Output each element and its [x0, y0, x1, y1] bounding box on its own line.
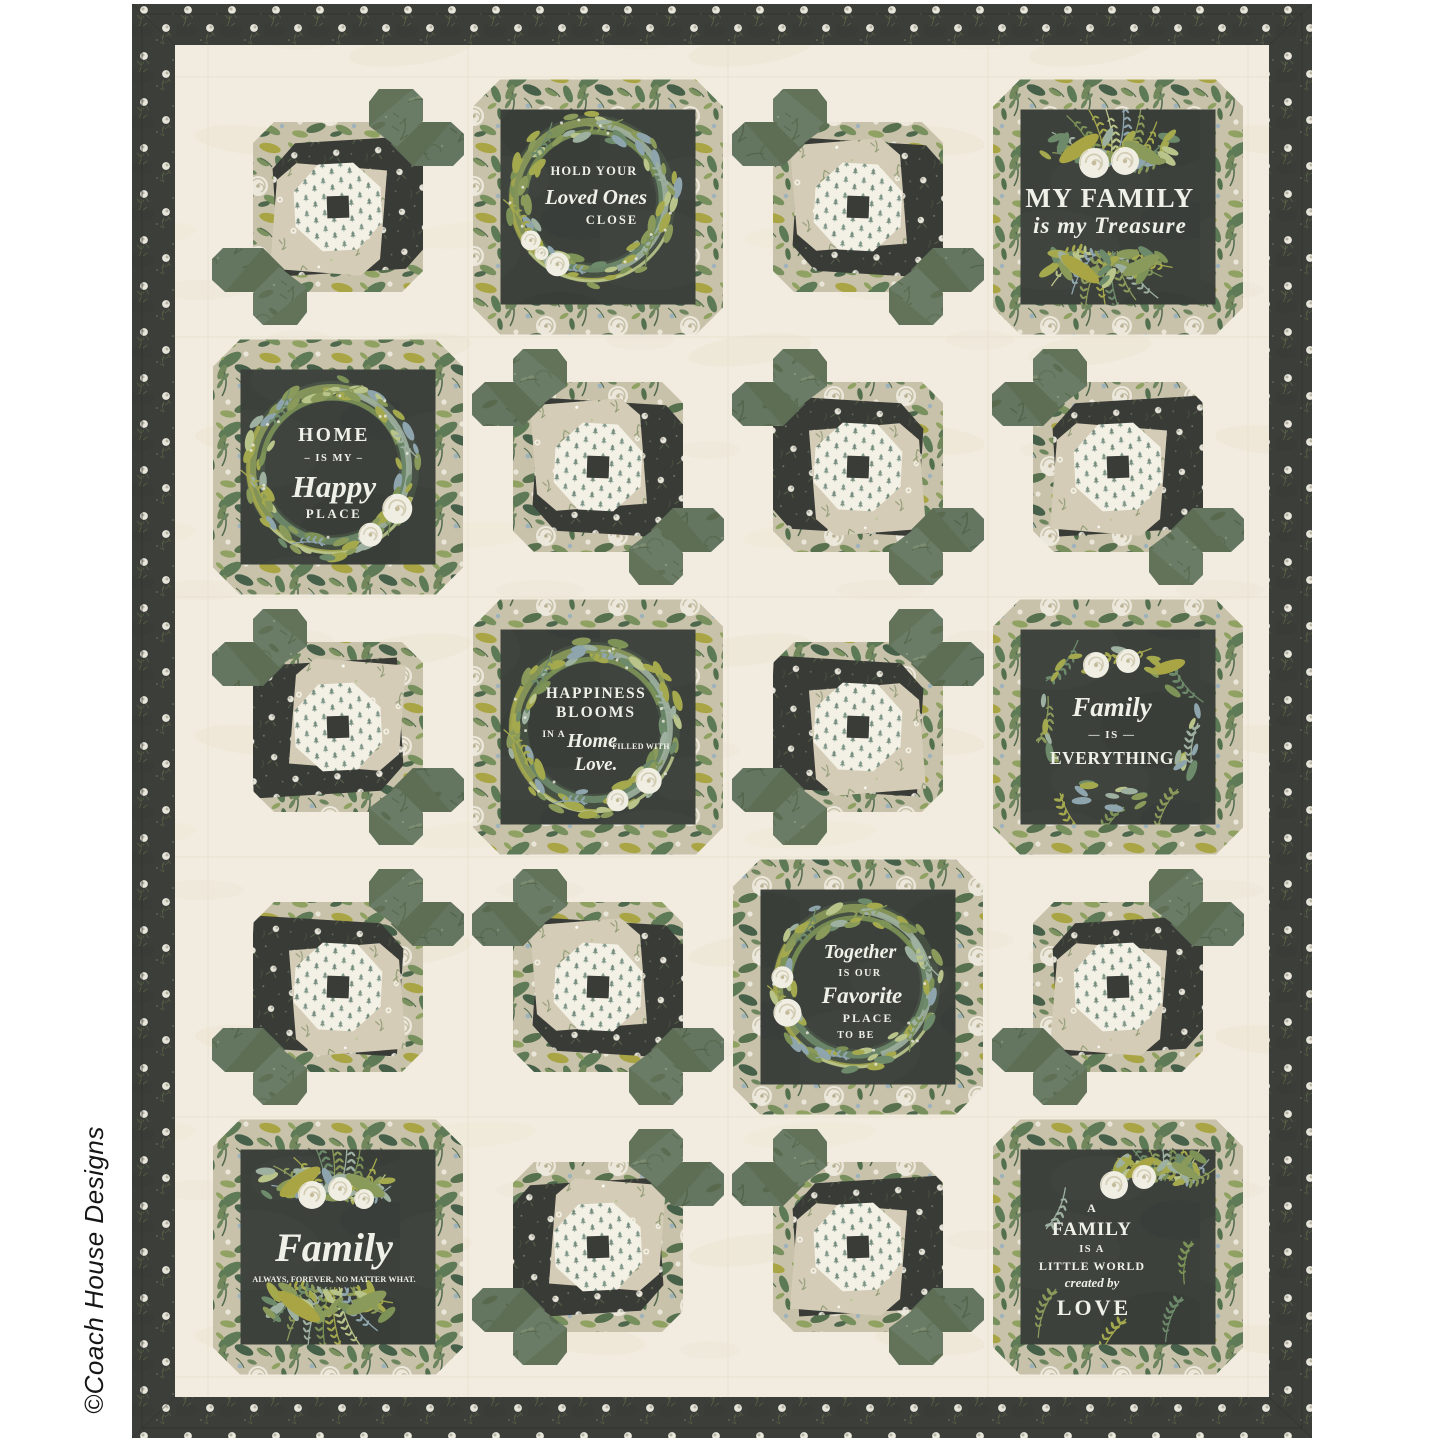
svg-text:FILLED WITH: FILLED WITH — [612, 742, 670, 751]
svg-text:PLACE: PLACE — [843, 1011, 894, 1025]
svg-text:created by: created by — [1065, 1275, 1120, 1290]
svg-text:EVERYTHING: EVERYTHING — [1050, 748, 1174, 768]
svg-text:IN A: IN A — [542, 730, 565, 740]
svg-text:Loved Ones: Loved Ones — [544, 185, 647, 209]
svg-text:Family: Family — [274, 1225, 393, 1270]
svg-text:– IS MY –: – IS MY – — [304, 453, 364, 464]
svg-text:©Coach House Designs: ©Coach House Designs — [79, 1126, 109, 1414]
svg-text:is my Treasure: is my Treasure — [1033, 213, 1187, 238]
svg-text:Favorite: Favorite — [821, 983, 903, 1008]
svg-text:— IS —: — IS — — [1088, 729, 1136, 741]
svg-text:Home: Home — [566, 730, 617, 752]
svg-text:Family: Family — [1071, 692, 1153, 722]
svg-text:PLACE: PLACE — [306, 506, 363, 521]
svg-text:A: A — [1087, 1201, 1097, 1215]
svg-text:FAMILY: FAMILY — [1052, 1219, 1132, 1240]
svg-text:HOLD YOUR: HOLD YOUR — [550, 164, 637, 178]
svg-text:LITTLE WORLD: LITTLE WORLD — [1039, 1259, 1145, 1273]
svg-text:IS OUR: IS OUR — [838, 968, 881, 979]
svg-text:HAPPINESS: HAPPINESS — [546, 685, 647, 702]
svg-text:HOME: HOME — [298, 425, 370, 446]
svg-text:TO BE: TO BE — [837, 1030, 875, 1041]
svg-text:BLOOMS: BLOOMS — [556, 704, 636, 721]
svg-text:CLOSE: CLOSE — [586, 213, 638, 227]
svg-text:MY FAMILY: MY FAMILY — [1025, 183, 1194, 213]
svg-text:LOVE: LOVE — [1057, 1295, 1131, 1320]
svg-text:ALWAYS, FOREVER, NO MATTER WHA: ALWAYS, FOREVER, NO MATTER WHAT. — [252, 1275, 415, 1284]
svg-text:Love.: Love. — [574, 754, 618, 775]
svg-text:IS A: IS A — [1079, 1244, 1105, 1255]
svg-text:Happy: Happy — [291, 469, 377, 504]
svg-text:Together: Together — [824, 941, 897, 963]
